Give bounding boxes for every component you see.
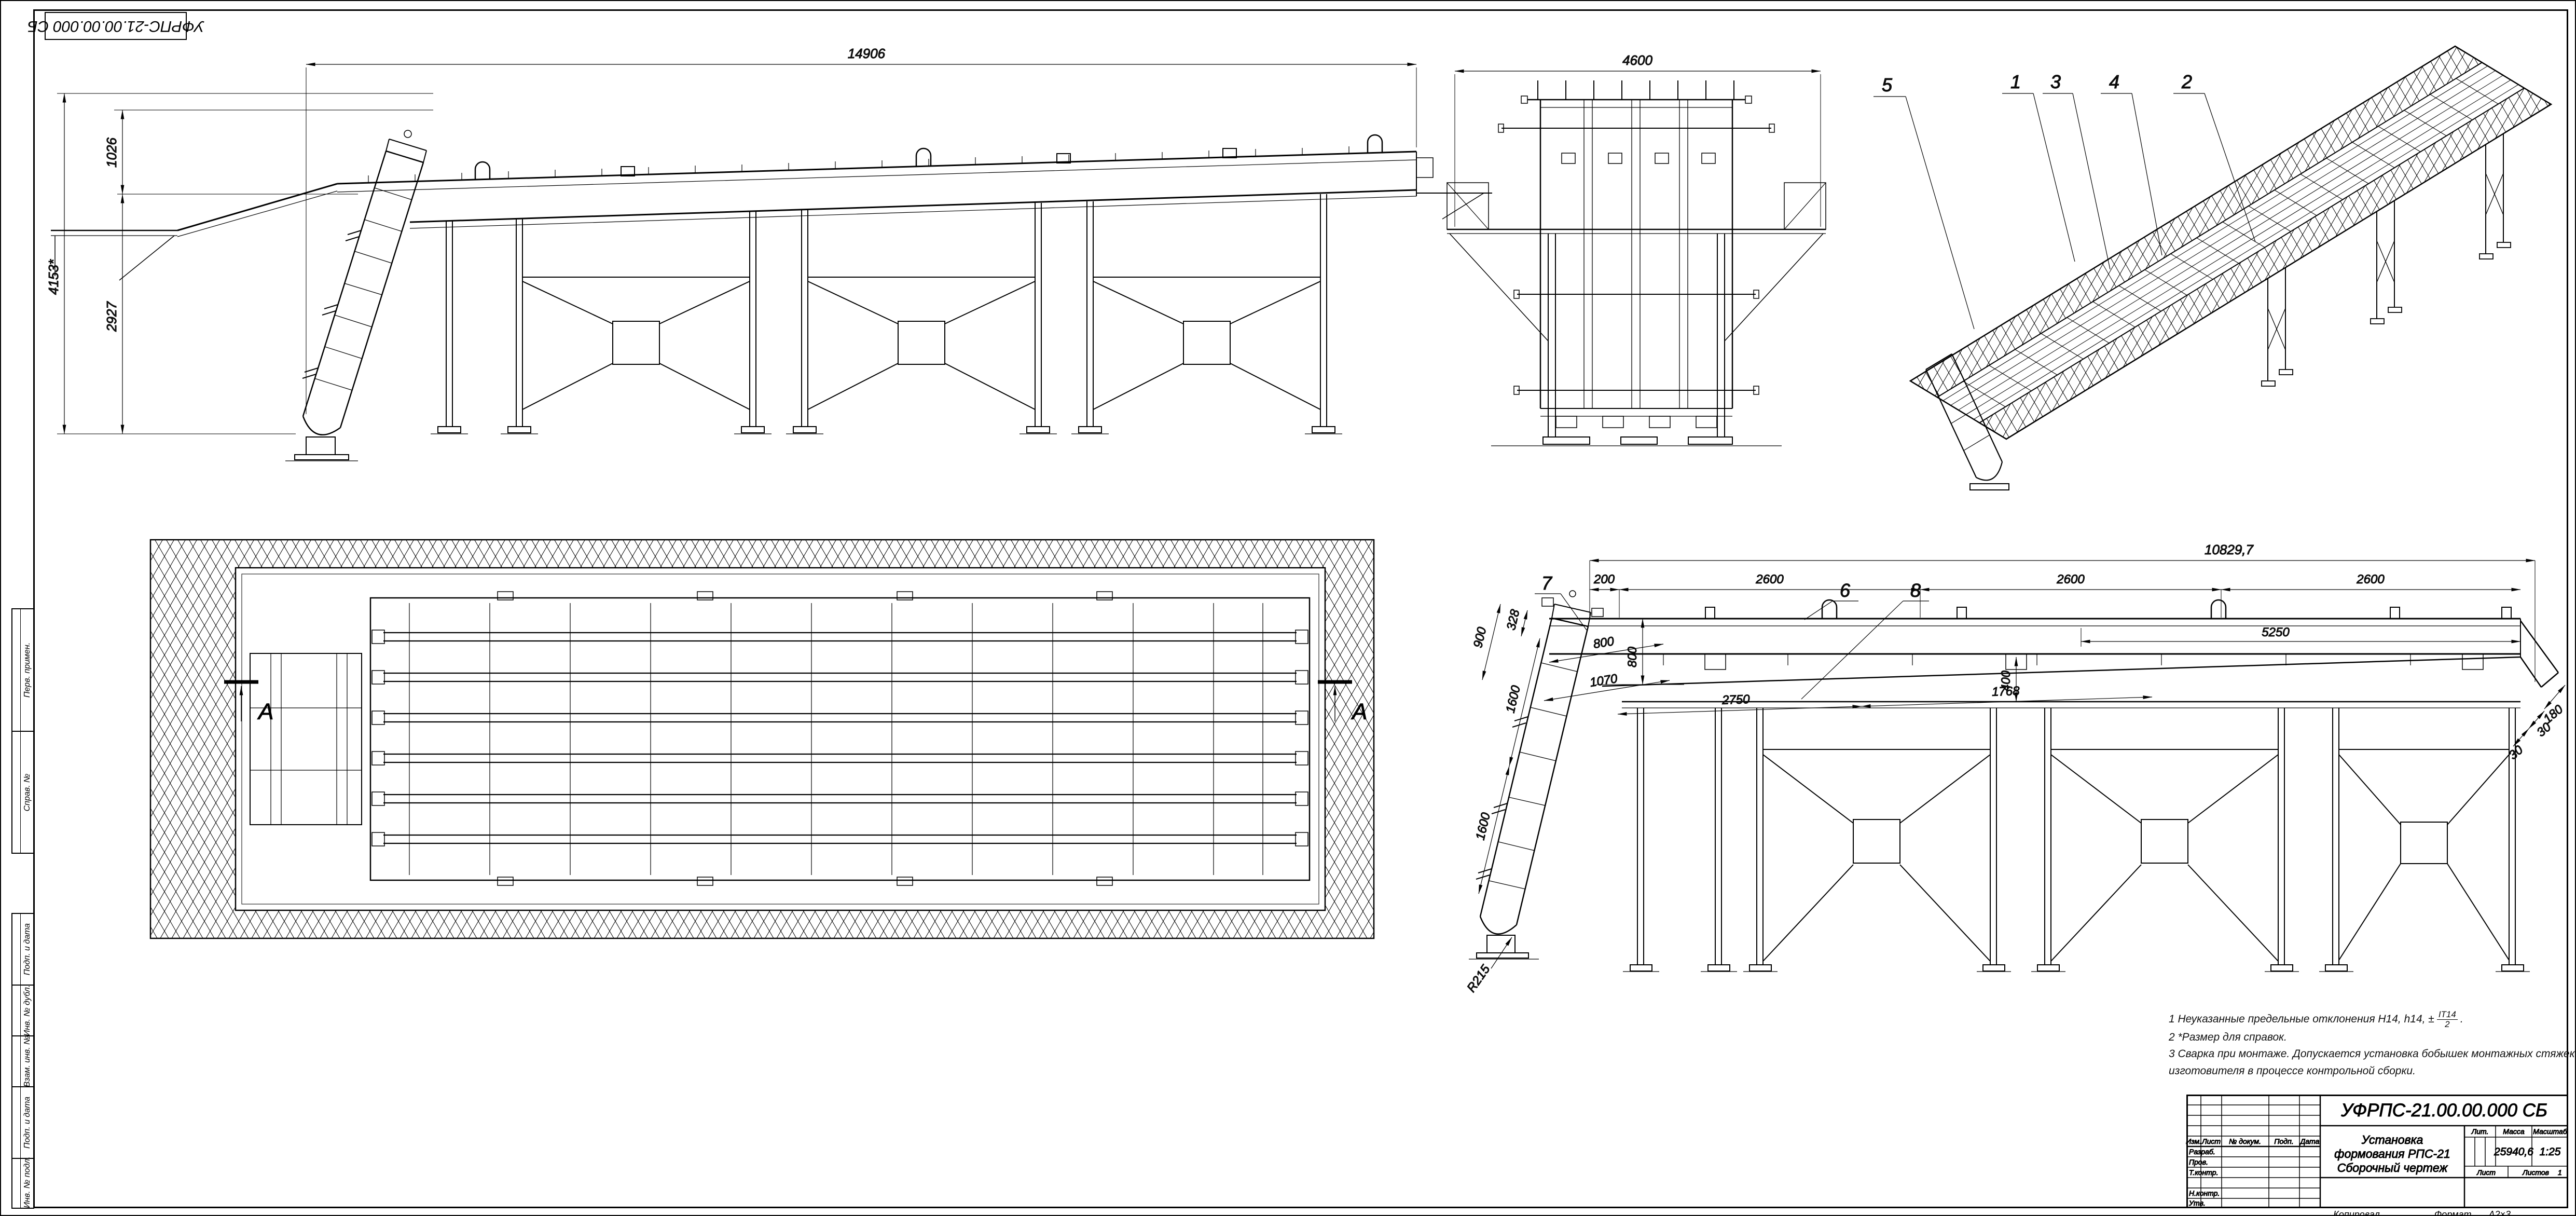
title-block: Изм. Лист № докум. Подп. Дата Разраб. Пр… <box>2186 1095 2568 1208</box>
section-label-a-right: А <box>1351 699 1367 725</box>
margin-label: Инв. № подл. <box>23 1156 32 1208</box>
footer-format-value: А2×3 <box>2489 1209 2511 1216</box>
tb-col-list: Лист <box>2201 1137 2221 1145</box>
callout-1: 1 <box>2010 71 2021 92</box>
margin-label: Подп. и дата <box>23 1097 32 1149</box>
callout-6: 6 <box>1840 580 1851 601</box>
dim-1600-1: 1600 <box>1504 684 1523 715</box>
note-3-line2: изготовителя в процессе контрольной сбор… <box>2169 1063 2568 1080</box>
margin-label: Инв. № дубл. <box>23 985 32 1036</box>
view-isometric: 5 1 3 4 2 <box>1840 18 2567 500</box>
tb-sheet-label: Лист <box>2476 1168 2496 1177</box>
note-3-line1: 3 Сварка при монтаже. Допускается устано… <box>2169 1046 2568 1063</box>
margin-cell-sprav-no: Справ. № <box>12 732 33 853</box>
tb-scale-header: Масштаб <box>2533 1127 2568 1136</box>
dim-200: 200 <box>1593 572 1615 586</box>
margin-label: Взам. инв. № <box>23 1036 32 1087</box>
tb-col-doc: № докум. <box>2229 1137 2261 1145</box>
margin-cell-podp-data-1: Подп. и дата <box>12 914 33 986</box>
view-plan: А А <box>147 537 1377 941</box>
dim-2600-1: 2600 <box>1755 572 1784 586</box>
footer-format: Формат А2×3 <box>2434 1209 2564 1216</box>
dim-2600-2: 2600 <box>2056 572 2085 586</box>
dim-10829: 10829,7 <box>2205 542 2254 557</box>
dim-800-s: 800 <box>1592 634 1615 651</box>
tb-col-podp: Подп. <box>2274 1137 2293 1145</box>
dim-4600: 4600 <box>1622 52 1652 68</box>
dim-1026: 1026 <box>104 138 119 168</box>
tb-mass-header: Масса <box>2503 1127 2525 1136</box>
tb-scale-value: 1:25 <box>2540 1146 2561 1158</box>
margin-stamp-bottom: Подп. и дата Инв. № дубл. Взам. инв. № П… <box>11 913 34 1209</box>
margin-label: Перв. примен. <box>23 643 32 698</box>
tb-row-utv: Утв. <box>2188 1199 2206 1207</box>
section-label-a-left: А <box>257 699 273 725</box>
dim-1600-2: 1600 <box>1473 811 1493 842</box>
dim-2600-3: 2600 <box>2356 572 2385 586</box>
note-2: 2 *Размер для справок. <box>2169 1029 2568 1046</box>
dim-4153: 4153* <box>46 259 61 295</box>
drawing-sheet: УФРПС-21.00.00.000 СБ Перв. примен. Спра… <box>0 0 2576 1216</box>
tb-name-3: Сборочный чертеж <box>2337 1161 2448 1174</box>
tb-name-1: Установка <box>2361 1133 2423 1146</box>
tb-designation: УФРПС-21.00.00.000 СБ <box>2340 1100 2547 1121</box>
tb-sheets-value: 1 <box>2558 1168 2562 1177</box>
dim-5250: 5250 <box>2262 625 2290 639</box>
dim-1768: 1768 <box>1992 684 2020 699</box>
callout-2: 2 <box>2181 71 2192 92</box>
margin-cell-vzam-inv: Взам. инв. № <box>12 1036 33 1087</box>
footer-copied: Копировал <box>2305 1209 2408 1216</box>
view-front: 4600 <box>1439 50 1834 460</box>
note-1-fraction: IT142 <box>2437 1010 2458 1029</box>
tb-sheets-label: Листов <box>2522 1168 2549 1177</box>
margin-cell-inv-dubl: Инв. № дубл. <box>12 986 33 1036</box>
tb-row-nkontr: Н.контр. <box>2189 1189 2220 1197</box>
tb-lit-header: Лит. <box>2471 1127 2489 1136</box>
technical-notes: 1 Неуказанные предельные отклонения Н14,… <box>2169 1010 2568 1080</box>
view-side-elevation-detail: 10829,7 200 2600 2600 2600 5250 800 400 … <box>1466 526 2574 993</box>
dim-1070: 1070 <box>1589 672 1619 690</box>
margin-label: Подп. и дата <box>23 923 32 975</box>
note-1: 1 Неуказанные предельные отклонения Н14,… <box>2169 1010 2568 1029</box>
footer-format-label: Формат <box>2434 1209 2471 1216</box>
dim-r215: R215 <box>1464 962 1493 995</box>
tb-row-tkontr: Т.контр. <box>2189 1168 2218 1177</box>
margin-stamp-top: Перв. примен. Справ. № <box>11 608 34 854</box>
tb-row-prov: Пров. <box>2189 1158 2208 1166</box>
dim-14906: 14906 <box>848 46 886 61</box>
view-side-elevation-main: 14906 4153* 1026 2927 <box>47 28 1494 464</box>
tb-row-razrab: Разраб. <box>2189 1147 2215 1156</box>
callout-5: 5 <box>1882 74 1893 95</box>
tb-col-izm: Изм. <box>2186 1137 2201 1145</box>
callout-7: 7 <box>1541 572 1553 594</box>
dim-328: 328 <box>1504 608 1522 632</box>
margin-cell-inv-podl: Инв. № подл. <box>12 1159 33 1206</box>
tb-name-2: формования РПС-21 <box>2334 1147 2450 1160</box>
tb-mass-value: 25940,6 <box>2494 1146 2533 1158</box>
margin-cell-perv-primen: Перв. примен. <box>12 609 33 732</box>
tb-col-data: Дата <box>2299 1137 2320 1145</box>
dim-900: 900 <box>1471 625 1489 649</box>
dim-2750: 2750 <box>1721 692 1751 707</box>
callout-4: 4 <box>2109 71 2119 92</box>
dim-2927: 2927 <box>104 301 119 332</box>
callout-8: 8 <box>1910 580 1921 601</box>
callout-3: 3 <box>2050 71 2061 92</box>
margin-label: Справ. № <box>23 773 32 811</box>
margin-cell-podp-data-2: Подп. и дата <box>12 1087 33 1159</box>
